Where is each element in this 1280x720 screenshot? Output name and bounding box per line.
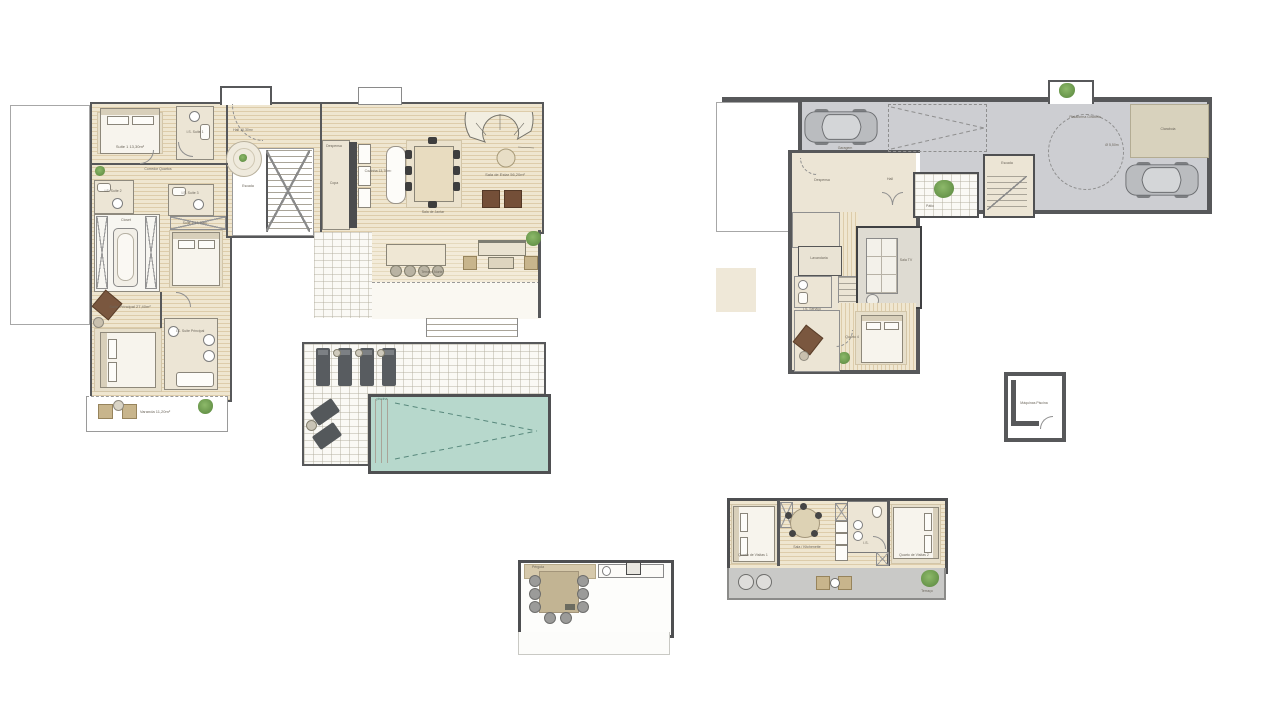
room-label: piscina: [377, 398, 388, 402]
wall: [1011, 380, 1016, 426]
room-label: I.S. Suite 3: [181, 192, 198, 196]
room-label: Terraço Norte: [421, 271, 442, 275]
sink-icon: [602, 566, 611, 576]
side-table-icon: [377, 349, 385, 357]
room-label: Escada: [242, 185, 254, 189]
side-table-icon: [355, 349, 363, 357]
skylight-box: [358, 87, 402, 105]
headboard: [101, 109, 159, 115]
stool-icon: [838, 576, 852, 590]
room-label: Cozinha 13,70m²: [365, 170, 392, 174]
pillow: [924, 513, 932, 531]
chair-icon: [405, 150, 412, 159]
room-label: Sala de Jantar: [422, 211, 445, 215]
side-table-icon: [113, 400, 124, 411]
chair-icon: [789, 530, 796, 537]
chair-icon: [815, 512, 822, 519]
chair-icon: [811, 530, 818, 537]
turntable-circle: [1048, 114, 1124, 190]
toilet-icon: [798, 292, 808, 304]
room-label: Quarto de Visitas 1: [738, 554, 768, 558]
bathtub-icon: [176, 372, 214, 387]
chair-icon: [577, 601, 589, 613]
chair-icon: [453, 150, 460, 159]
grill-icon: [626, 562, 641, 575]
stairs-direction-line: [987, 176, 1027, 210]
chair-icon: [404, 265, 416, 277]
toilet-icon: [193, 199, 204, 210]
room-label: Terraço: [921, 590, 933, 594]
pillow: [132, 116, 154, 125]
floorplan-sheet: Suite 1 13,30m² I.S. Suite 1 Hall 10,30m…: [0, 0, 1280, 720]
bed-icon: [172, 232, 220, 286]
ramp-area: [888, 104, 987, 152]
coffee-table-icon: [488, 257, 514, 269]
sink-icon: [853, 520, 863, 530]
room-label: Máquinas Piscina: [1020, 402, 1047, 406]
chair-icon: [560, 612, 572, 624]
bed-icon: [893, 507, 939, 559]
kitchen-appliance: [358, 188, 371, 208]
pillow: [108, 339, 117, 359]
kitchen-island: [386, 146, 406, 204]
bed-icon: [861, 315, 903, 363]
terrace-lower: [372, 282, 540, 319]
room-label: Sala / Kitchenette: [793, 546, 820, 550]
chair-icon: [529, 601, 541, 613]
chair-icon: [529, 588, 541, 600]
outdoor-steps: [426, 318, 518, 337]
room-label: Hall 10,30m²: [233, 129, 253, 133]
stool-icon: [98, 404, 113, 419]
chair-icon: [405, 166, 412, 175]
room-label: I.S. Suite Principal: [176, 330, 205, 334]
pillow: [740, 513, 748, 532]
room-label: Despensa: [814, 179, 830, 183]
room-label: I.S. Suite 1: [186, 131, 203, 135]
sink-icon: [203, 350, 215, 362]
side-table-icon: [306, 420, 317, 431]
dining-table-icon: [414, 146, 454, 202]
laundry-room: [798, 246, 842, 276]
terrace-tile: [314, 232, 372, 318]
stool-icon: [816, 576, 830, 590]
armchair-icon: [482, 190, 500, 208]
pool: [368, 394, 551, 474]
room-label: Suite 2 13,10m²: [183, 222, 208, 226]
chair-icon: [405, 182, 412, 191]
kitchen-counter: [349, 142, 357, 228]
headboard: [173, 233, 219, 239]
pool-machinery-plan: Máquinas Piscina: [1004, 372, 1066, 442]
pillow: [924, 535, 932, 553]
room-label: Plataforma Giratória: [1069, 116, 1100, 120]
room-label: I.S.: [863, 542, 868, 546]
wall: [92, 163, 228, 165]
room-label: Quarto 4: [845, 336, 859, 340]
sink-icon: [798, 280, 808, 290]
toilet-icon: [112, 198, 123, 209]
side-table-icon: [830, 578, 840, 588]
car-icon: [803, 107, 879, 147]
chair-icon: [544, 612, 556, 624]
pillow: [866, 322, 881, 330]
pool-steps: [375, 399, 393, 463]
headboard: [101, 333, 107, 387]
side-table-icon: [799, 351, 809, 361]
stool-icon: [122, 404, 137, 419]
headboard: [933, 508, 938, 558]
outdoor-sofa-icon: [478, 240, 526, 256]
main-floor-plan: Suite 1 13,30m² I.S. Suite 1 Hall 10,30m…: [0, 0, 640, 500]
storage-room: [792, 212, 840, 248]
room-label: I.S. Suite 2: [104, 190, 121, 194]
skylight-box: [220, 86, 272, 105]
pillow: [884, 322, 899, 330]
wall: [798, 100, 802, 154]
light-patch: [716, 268, 756, 312]
stairs-direction-line: [266, 150, 310, 232]
garage-floor-plan: Garagem Plataforma Giratória Ø 5,50m Cla…: [640, 0, 1280, 480]
room-label: Lavandaria: [810, 257, 827, 261]
pillow: [198, 240, 215, 249]
chair-icon: [428, 201, 437, 208]
pool-depth-lines: [371, 397, 542, 465]
chair-icon: [453, 166, 460, 175]
chair-icon: [390, 265, 402, 277]
room-label: Quarto de Visitas 2: [899, 554, 929, 558]
chair-icon: [577, 588, 589, 600]
room-label: Suite Principal 27,40m²: [109, 305, 150, 309]
toilet-icon: [872, 506, 882, 518]
room-label: Sala de Estar 56,20m²: [485, 173, 525, 177]
wall: [1011, 421, 1039, 426]
wardrobe-icon: [145, 216, 157, 289]
outdoor-table-icon: [386, 244, 446, 266]
room-label: Suite 1 13,30m²: [116, 145, 144, 149]
pouf-icon: [738, 574, 754, 590]
room-label: Corredor Quartos: [144, 168, 171, 172]
bathtub-inner: [117, 233, 134, 281]
chair-icon: [529, 575, 541, 587]
bed-icon: [100, 332, 156, 388]
tray-icon: [565, 604, 575, 610]
shower-drain-icon: [189, 111, 200, 122]
room-label: Pátio: [926, 205, 934, 209]
door-arc: [1040, 416, 1053, 429]
side-table-icon: [333, 349, 341, 357]
side-table-icon: [93, 317, 104, 328]
car-icon: [1120, 161, 1204, 199]
room-label: Copa: [330, 182, 338, 186]
sofa-icon: [866, 238, 898, 294]
ramp-lines: [889, 105, 986, 151]
armchair-icon: [504, 190, 522, 208]
roof-overhang-outline: [10, 105, 90, 325]
room-label: Claraboia: [1161, 128, 1176, 132]
room-label: Pérgola: [532, 566, 544, 570]
guest-annex-plan: Quarto de Visitas 1 Sala / Kitchenette I…: [727, 498, 942, 602]
open-terrace: [518, 632, 670, 655]
pillow: [178, 240, 195, 249]
chair-icon: [428, 137, 437, 144]
room-label: Hall: [887, 178, 893, 182]
chair-icon: [577, 575, 589, 587]
room-label: Varanda 11,20m²: [140, 410, 170, 414]
wall: [722, 97, 1212, 102]
headboard: [862, 316, 902, 321]
room-label: Sala TV: [900, 259, 912, 263]
room-label: Garagem: [838, 147, 853, 151]
chair-icon: [785, 512, 792, 519]
sink-icon: [203, 334, 215, 346]
wardrobe-icon: [876, 552, 889, 566]
room-label: Closet: [121, 219, 131, 223]
room-label: Despensa: [326, 145, 342, 149]
outdoor-armchair-icon: [463, 256, 477, 270]
room-label: Ø 5,50m: [1105, 144, 1118, 148]
lounger-icon: [316, 348, 330, 386]
chair-icon: [453, 182, 460, 191]
wardrobe-icon: [96, 216, 108, 289]
outdoor-armchair-icon: [524, 256, 538, 270]
pillow: [107, 116, 129, 125]
kitchen-appliance: [358, 144, 371, 164]
room-label: I.S. Serviço: [803, 308, 821, 312]
sink-icon: [853, 531, 863, 541]
pillow: [108, 362, 117, 382]
roof-terrace-plan: Pérgola: [518, 560, 668, 654]
pouf-icon: [756, 574, 772, 590]
chair-icon: [800, 503, 807, 510]
room-label: Escada: [1001, 162, 1013, 166]
